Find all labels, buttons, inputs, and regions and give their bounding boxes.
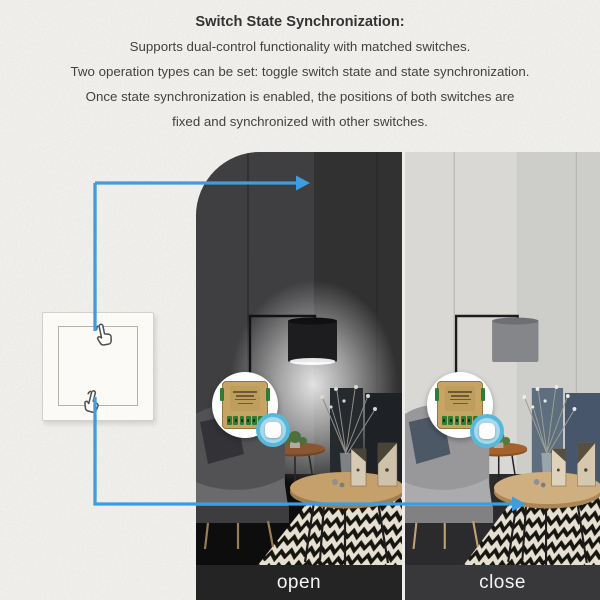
switch-button-icon: [470, 414, 504, 448]
module-label-area: [445, 386, 475, 411]
module-label-area: [230, 386, 260, 411]
tap-hand-icon: [87, 321, 118, 352]
room-scene-lamp-off: [405, 152, 600, 600]
heading-line-2: Two operation types can be set: toggle s…: [0, 59, 600, 84]
photo-label-close: close: [405, 565, 600, 600]
tap-hand-icon: [74, 386, 106, 418]
switch-button-icon: [256, 413, 290, 447]
heading-line-4: fixed and synchronized with other switch…: [0, 109, 600, 134]
product-feature-image: { "heading": { "title": "Switch State Sy…: [0, 0, 600, 600]
room-photo-lamp-off: close: [405, 152, 600, 600]
heading-line-1: Supports dual-control functionality with…: [0, 34, 600, 59]
heading: Switch State Synchronization: Supports d…: [0, 10, 600, 134]
heading-line-3: Once state synchronization is enabled, t…: [0, 84, 600, 109]
photo-label-open: open: [196, 565, 402, 600]
wall-switch-illustration: [42, 312, 154, 421]
heading-title: Switch State Synchronization:: [0, 10, 600, 34]
